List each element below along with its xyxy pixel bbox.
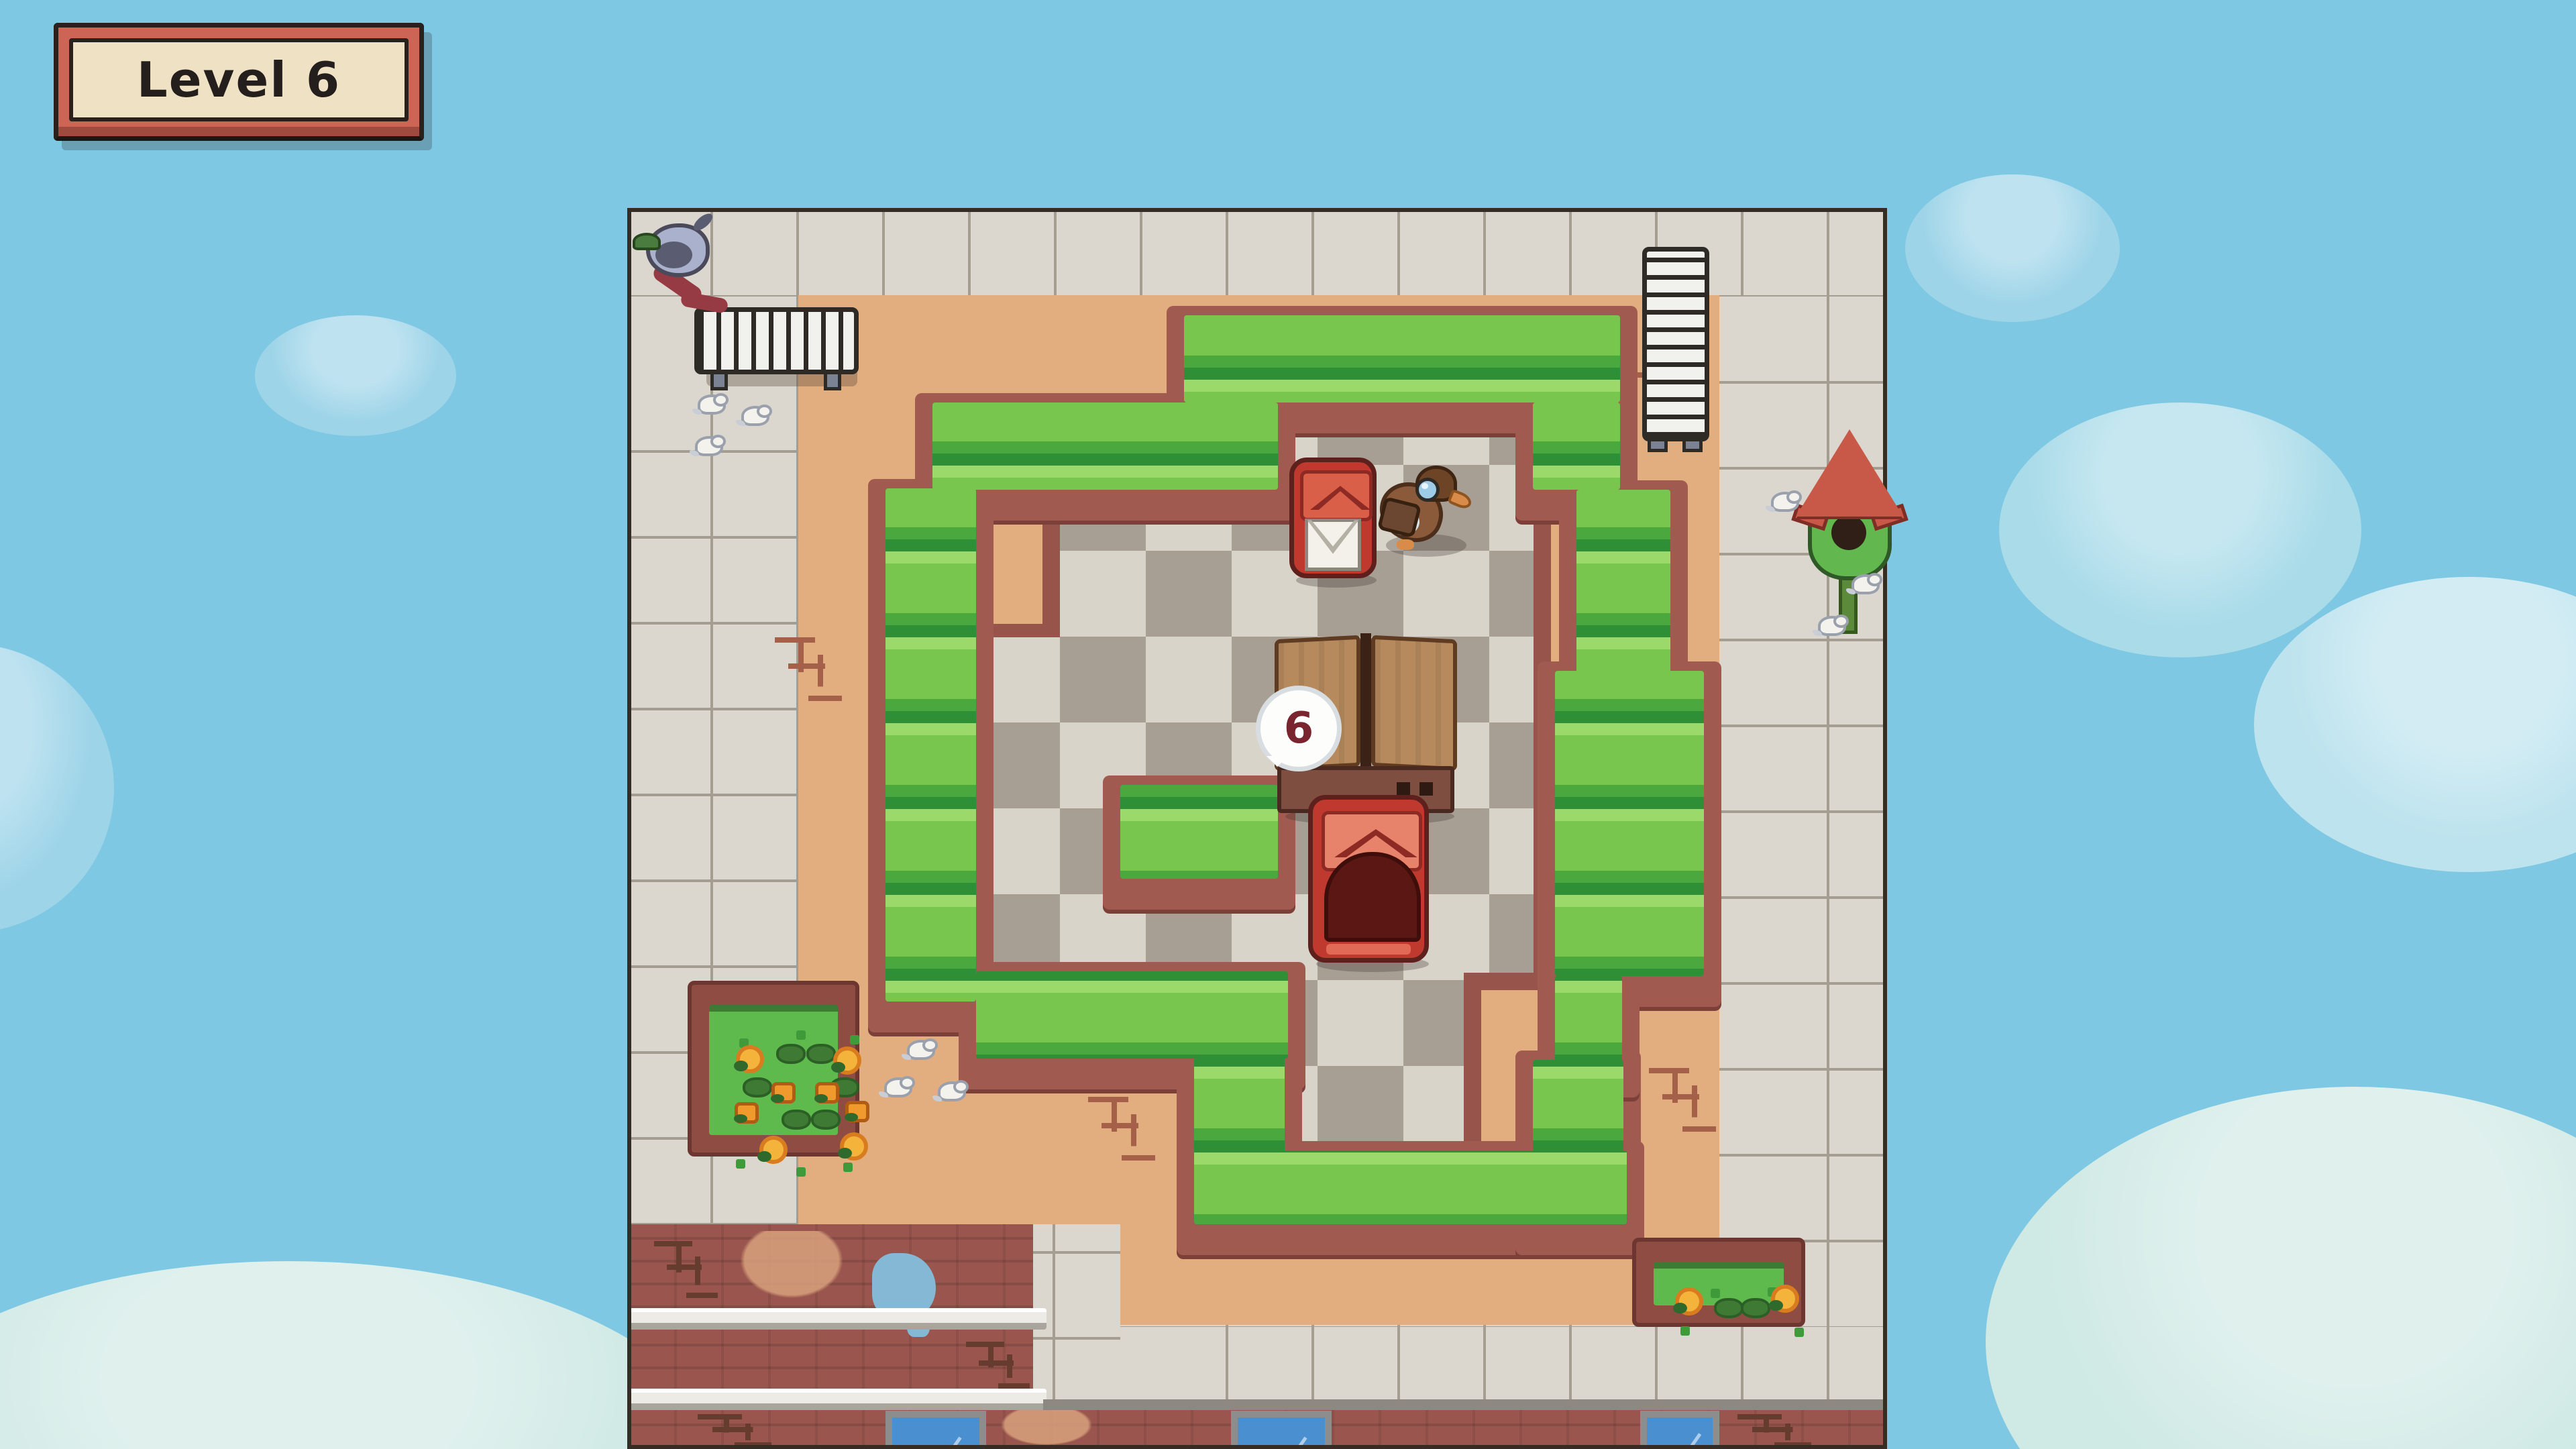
level-label: Level 6 [137, 52, 341, 108]
speech-bubble: 6 [1256, 686, 1342, 771]
grass-speck [1680, 1326, 1690, 1336]
flower [759, 1136, 788, 1164]
game-viewport: Level 6 Restart 6 [0, 0, 2576, 1449]
building-window [1231, 1411, 1332, 1449]
cloud [1999, 402, 2361, 657]
duck-foot [1397, 539, 1414, 550]
grass-speck [796, 1167, 806, 1177]
parcel-chute-slot [1360, 633, 1371, 770]
bush [811, 1110, 841, 1130]
cloud [0, 644, 114, 932]
level-badge: Level 6 [54, 23, 424, 141]
flower [840, 1132, 868, 1161]
pigeon-wing [655, 241, 692, 268]
hedge-bush [1184, 315, 1620, 402]
hedge-bush [1533, 402, 1620, 490]
dove [1818, 616, 1846, 636]
birdhouse-hole [1831, 515, 1866, 550]
dove [884, 1077, 912, 1097]
birdhouse-roof [1796, 429, 1903, 517]
garden-planter [688, 981, 859, 1157]
flower [1771, 1285, 1799, 1313]
park-bench [1642, 247, 1709, 441]
level-badge-panel: Level 6 [69, 38, 409, 121]
mailbox-lip [1326, 944, 1411, 955]
hedge-bush [1120, 785, 1278, 879]
building-ledge [627, 1389, 1046, 1410]
grass-speck [850, 1035, 859, 1044]
garden-planter-grass [709, 1005, 838, 1135]
envelope-icon [1305, 519, 1361, 571]
flower [833, 1046, 861, 1075]
hedge-bush [1533, 1060, 1623, 1224]
dove [695, 436, 723, 456]
bush [1741, 1298, 1770, 1318]
cloud [0, 1261, 724, 1449]
building-window [1640, 1411, 1719, 1449]
hedge-bush [885, 488, 976, 1002]
tulip-flower [815, 1082, 839, 1104]
park-bench [694, 307, 859, 374]
curb-line [1043, 1399, 1887, 1410]
bush [782, 1110, 811, 1130]
cloud [1905, 174, 2120, 322]
chute-vent [1397, 782, 1410, 796]
mailbox-open[interactable] [1308, 795, 1429, 963]
mailbox-opening [1324, 852, 1421, 943]
bush [743, 1077, 772, 1097]
mailbox-with-letter[interactable] [1289, 458, 1377, 578]
bush [776, 1044, 806, 1064]
dove [907, 1040, 935, 1060]
grass-speck [1794, 1328, 1804, 1337]
dove [1851, 574, 1880, 594]
plaza-checker-tiles[interactable] [1281, 973, 1464, 1152]
dove [741, 406, 769, 426]
dove [698, 394, 726, 415]
building-ledge [627, 1308, 1046, 1330]
hedge-bush [1555, 671, 1704, 976]
garden-planter-small-grass [1654, 1262, 1784, 1305]
hedge-bush [1194, 971, 1285, 1166]
mailbox-flap [1300, 470, 1372, 521]
wall-stain [731, 1231, 852, 1305]
bubble-count: 6 [1284, 704, 1314, 753]
building-window [885, 1411, 986, 1449]
garden-planter-small [1632, 1238, 1805, 1327]
flower [1675, 1287, 1703, 1316]
building-brick-band [627, 1328, 1033, 1392]
bush [1714, 1298, 1743, 1318]
pigeon-cap [633, 233, 661, 250]
hedge-bush [1576, 490, 1670, 678]
cloud [255, 315, 456, 436]
bush [806, 1044, 836, 1064]
grass-speck [1711, 1289, 1720, 1298]
tulip-flower [771, 1082, 796, 1104]
grass-speck [736, 1159, 745, 1169]
grass-speck [796, 1030, 806, 1040]
sidewalk-tiles [1120, 1325, 1887, 1409]
chute-vent [1419, 782, 1433, 796]
tulip-flower [735, 1102, 759, 1124]
hedge-bush [1555, 976, 1622, 1067]
flower [736, 1045, 764, 1073]
duck-goggle [1415, 478, 1440, 502]
hedge-bush [932, 402, 1278, 490]
cloud [1986, 1087, 2576, 1449]
wall-stain [993, 1409, 1100, 1449]
tulip-flower [845, 1101, 869, 1122]
parcel-chute-flap [1371, 635, 1457, 771]
grass-speck [843, 1163, 853, 1172]
dove [1771, 492, 1799, 512]
dove [938, 1081, 966, 1102]
